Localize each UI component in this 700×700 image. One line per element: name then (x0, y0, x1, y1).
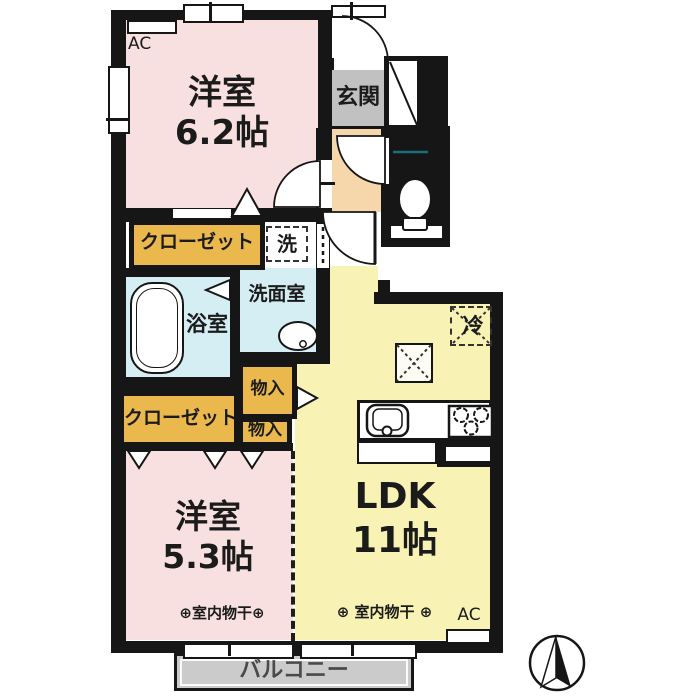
ldk-size: 11帖 (330, 522, 460, 560)
kitchen-side-cabinet (446, 447, 490, 461)
bedroom-bottom-name: 洋室 (138, 500, 278, 535)
floor-plan: 洋室 6.2帖 玄関 クローゼット 洗 洗面室 浴室 物入 物入 クローゼット … (0, 0, 700, 700)
window-tick-south-right (351, 641, 354, 656)
wall-right (490, 292, 503, 653)
bathtub-inner-line (136, 288, 178, 368)
bedroom-top-size: 6.2帖 (152, 116, 292, 152)
floor-hatch-box (395, 343, 433, 383)
indoor-drying-left: ⊕室内物干⊕ (152, 606, 292, 622)
wall-right-of-shoebox (420, 56, 448, 133)
bedroom-top-name: 洋室 (152, 76, 292, 112)
entrance-door-leaf (331, 5, 386, 18)
closet-lower-label: クローゼット (124, 409, 234, 429)
balcony-label: バルコニー (214, 659, 374, 682)
window-bedroom-top-west (108, 66, 130, 134)
washer-space-label: 洗 (266, 234, 308, 255)
bedroom-bottom-size: 5.3帖 (138, 540, 278, 575)
door-gap-toilet (381, 138, 389, 184)
hall-door-vestibule (330, 212, 378, 266)
window-tick-south-left (228, 641, 231, 656)
kitchen-counter (357, 400, 492, 441)
window-bedroom-bottom-south (183, 643, 294, 659)
bathroom-label: 浴室 (183, 313, 231, 335)
compass-needle-dark (556, 636, 571, 687)
entrance-step-line (330, 126, 384, 129)
window-bedroom-top-north (183, 4, 244, 23)
storage-lower-label: 物入 (240, 422, 290, 440)
entrance-label: 玄関 (330, 86, 386, 109)
closet-upper-door-slab (172, 208, 232, 219)
ac-unit-bottom (446, 629, 491, 644)
indoor-drying-right: ⊕ 室内物干 ⊕ (322, 605, 447, 621)
shoe-cabinet (384, 56, 422, 130)
refrigerator-label: 冷 (455, 315, 491, 337)
door-gap-washroom (317, 224, 329, 268)
washroom-label: 洗面室 (237, 285, 317, 305)
door-tick-bedroom-top (315, 182, 335, 185)
wall-ldk-top (374, 292, 503, 304)
toilet-cabinet (391, 226, 442, 238)
ldk-name: LDK (330, 478, 460, 516)
window-tick-west (106, 118, 128, 121)
hall-floor (330, 128, 381, 212)
storage-upper-label: 物入 (240, 381, 295, 399)
door-arc-entrance (342, 16, 388, 62)
window-ldk-south (300, 643, 417, 659)
ac-bottom-label: AC (446, 607, 492, 625)
compass-circle (530, 636, 584, 690)
kitchen-counter-front (357, 441, 437, 464)
ldk-floor-arm (330, 266, 378, 303)
entrance-door-tick (350, 2, 353, 20)
wall-ldk-top-stub (378, 280, 390, 304)
ac-top-label: AC (128, 36, 174, 54)
washroom-floor (240, 268, 316, 352)
window-tick-north (209, 2, 212, 21)
closet-upper-label: クローゼット (134, 233, 260, 253)
ac-unit-top (127, 20, 177, 34)
compass-needle-light (541, 636, 556, 687)
ldk-floor-left (295, 352, 330, 640)
door-gap-entrance (334, 58, 386, 70)
